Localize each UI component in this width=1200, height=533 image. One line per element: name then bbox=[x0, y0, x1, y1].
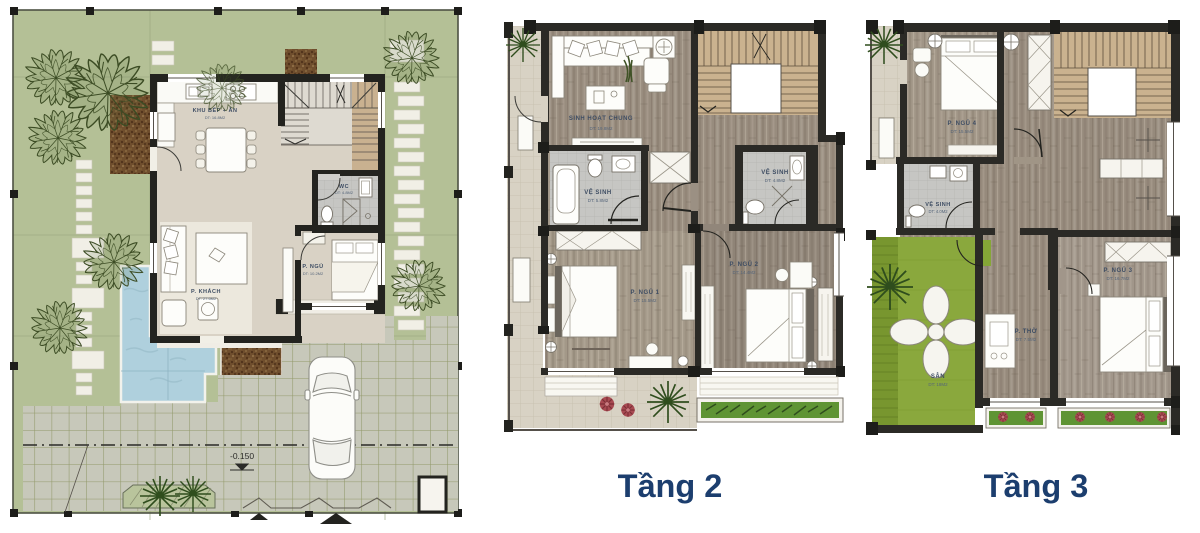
svg-text:DT: 4.8M2: DT: 4.8M2 bbox=[765, 178, 786, 183]
svg-text:P. NGỦ 1: P. NGỦ 1 bbox=[631, 289, 660, 296]
svg-text:KHU BẾP + ĂN: KHU BẾP + ĂN bbox=[193, 107, 238, 114]
svg-text:DT: 15.5M2: DT: 15.5M2 bbox=[950, 129, 974, 134]
svg-text:DT: 19.8M2: DT: 19.8M2 bbox=[589, 126, 613, 131]
svg-text:-0.150: -0.150 bbox=[230, 451, 254, 461]
svg-text:P. NGỦ 4: P. NGỦ 4 bbox=[948, 120, 977, 127]
svg-text:Tầng 3: Tầng 3 bbox=[984, 468, 1089, 504]
svg-text:DT: 4.8M2: DT: 4.8M2 bbox=[335, 190, 354, 195]
svg-text:DT: 5.8M2: DT: 5.8M2 bbox=[588, 198, 609, 203]
svg-text:P. THỜ: P. THỜ bbox=[1015, 327, 1038, 335]
svg-text:Tầng 2: Tầng 2 bbox=[618, 468, 723, 504]
svg-text:VỆ SINH: VỆ SINH bbox=[761, 168, 789, 176]
svg-text:P. NGỦ: P. NGỦ bbox=[302, 263, 323, 270]
svg-text:DT: 15.5M2: DT: 15.5M2 bbox=[633, 298, 657, 303]
svg-text:P. NGỦ 2: P. NGỦ 2 bbox=[730, 261, 759, 268]
svg-text:DT: 14.4M2: DT: 14.4M2 bbox=[732, 270, 756, 275]
svg-text:SINH HOẠT CHUNG: SINH HOẠT CHUNG bbox=[569, 116, 633, 122]
svg-text:DT: 18M2: DT: 18M2 bbox=[928, 382, 948, 387]
svg-text:DT: 27.6M2: DT: 27.6M2 bbox=[196, 296, 217, 301]
svg-text:P. KHÁCH: P. KHÁCH bbox=[191, 288, 221, 295]
svg-text:VỆ SINH: VỆ SINH bbox=[584, 188, 612, 196]
svg-text:DT: 10.2M2: DT: 10.2M2 bbox=[303, 271, 324, 276]
svg-text:DT: 4.0M2: DT: 4.0M2 bbox=[928, 209, 948, 214]
svg-text:DT: 7.5M2: DT: 7.5M2 bbox=[1016, 337, 1037, 342]
svg-text:DT: 16.8M2: DT: 16.8M2 bbox=[205, 115, 226, 120]
svg-text:VỆ SINH: VỆ SINH bbox=[925, 200, 951, 208]
svg-text:P. NGỦ 3: P. NGỦ 3 bbox=[1104, 267, 1133, 274]
svg-text:DT: 16.7M2: DT: 16.7M2 bbox=[1106, 276, 1130, 281]
svg-text:SÂN: SÂN bbox=[931, 373, 945, 380]
